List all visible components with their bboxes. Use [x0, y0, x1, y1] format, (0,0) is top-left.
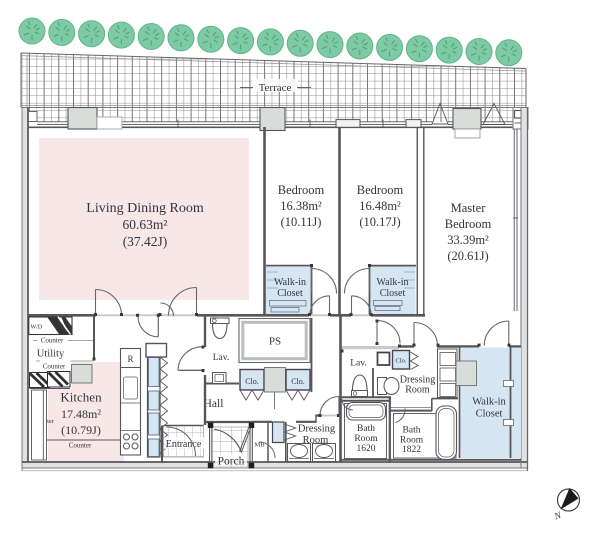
- svg-text:(37.42J): (37.42J): [123, 234, 168, 249]
- svg-text:Bath: Bath: [403, 426, 421, 436]
- svg-text:(10.17J): (10.17J): [359, 215, 400, 229]
- svg-text:Master: Master: [451, 201, 487, 215]
- svg-text:Counter: Counter: [69, 442, 92, 450]
- svg-text:16.38m²: 16.38m²: [280, 199, 322, 213]
- svg-text:Clo.: Clo.: [291, 377, 305, 386]
- svg-text:Closet: Closet: [476, 409, 503, 420]
- svg-text:Walk-in: Walk-in: [274, 277, 306, 288]
- svg-text:1822: 1822: [402, 445, 421, 455]
- svg-text:16.48m²: 16.48m²: [359, 199, 401, 213]
- svg-text:Entrance: Entrance: [166, 439, 202, 450]
- svg-text:33.39m²: 33.39m²: [447, 233, 489, 247]
- svg-text:PS: PS: [269, 336, 281, 348]
- svg-text:Lav.: Lav.: [350, 359, 367, 369]
- svg-text:17.48m²: 17.48m²: [61, 407, 101, 421]
- svg-text:Terrace: Terrace: [259, 82, 292, 94]
- svg-text:Living Dining Room: Living Dining Room: [86, 201, 204, 216]
- svg-text:(20.61J): (20.61J): [447, 249, 488, 263]
- svg-text:Room: Room: [405, 385, 430, 396]
- svg-text:Counter: Counter: [43, 363, 66, 371]
- svg-text:Dressing: Dressing: [298, 424, 336, 435]
- svg-text:R: R: [127, 354, 133, 364]
- svg-text:60.63m²: 60.63m²: [123, 217, 168, 232]
- svg-text:Bedroom: Bedroom: [278, 183, 325, 197]
- svg-text:1620: 1620: [357, 444, 376, 454]
- svg-text:Counter: Counter: [41, 337, 64, 345]
- svg-text:(10.79J): (10.79J): [61, 423, 101, 437]
- svg-text:Bedroom: Bedroom: [445, 217, 492, 231]
- svg-text:Lav.: Lav.: [213, 353, 230, 363]
- svg-text:Kitchen: Kitchen: [60, 390, 102, 405]
- svg-text:Bath: Bath: [357, 424, 375, 434]
- svg-text:Closet: Closet: [380, 288, 406, 299]
- svg-text:Walk-in: Walk-in: [472, 397, 506, 408]
- svg-text:Closet: Closet: [277, 288, 303, 299]
- svg-text:Walk-in: Walk-in: [377, 277, 409, 288]
- svg-text:(10.11J): (10.11J): [281, 215, 322, 229]
- svg-text:Porch: Porch: [218, 456, 245, 468]
- svg-text:Clo.: Clo.: [245, 377, 259, 386]
- svg-text:Utility: Utility: [37, 349, 65, 360]
- svg-text:Bedroom: Bedroom: [357, 183, 404, 197]
- svg-text:W/D: W/D: [31, 325, 43, 331]
- svg-text:Hall: Hall: [204, 398, 224, 410]
- svg-text:Clo.: Clo.: [395, 358, 406, 365]
- svg-text:Room: Room: [354, 434, 378, 444]
